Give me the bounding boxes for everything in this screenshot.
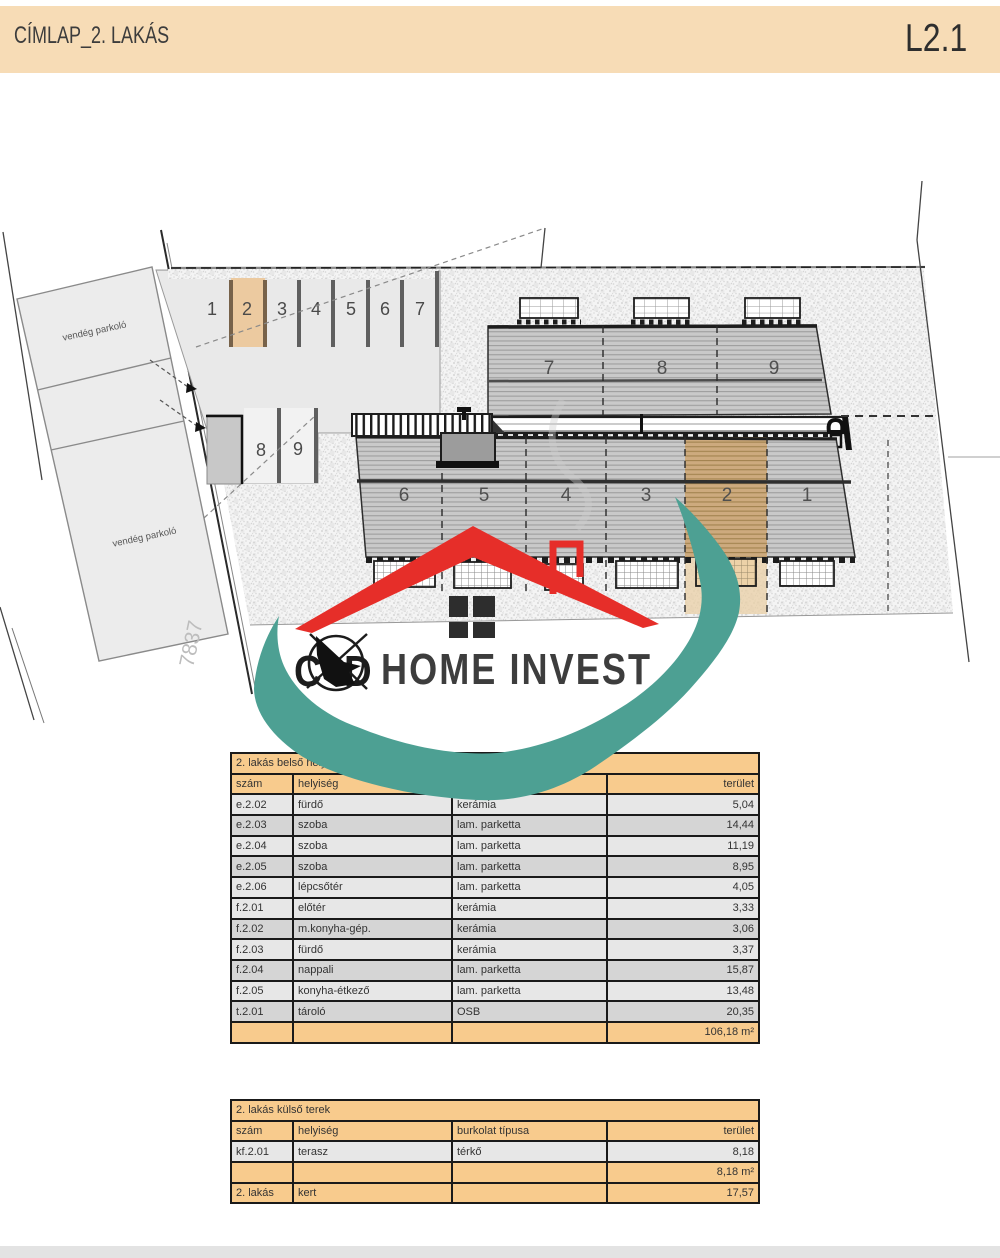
svg-text:HOME INVEST: HOME INVEST	[381, 645, 652, 694]
